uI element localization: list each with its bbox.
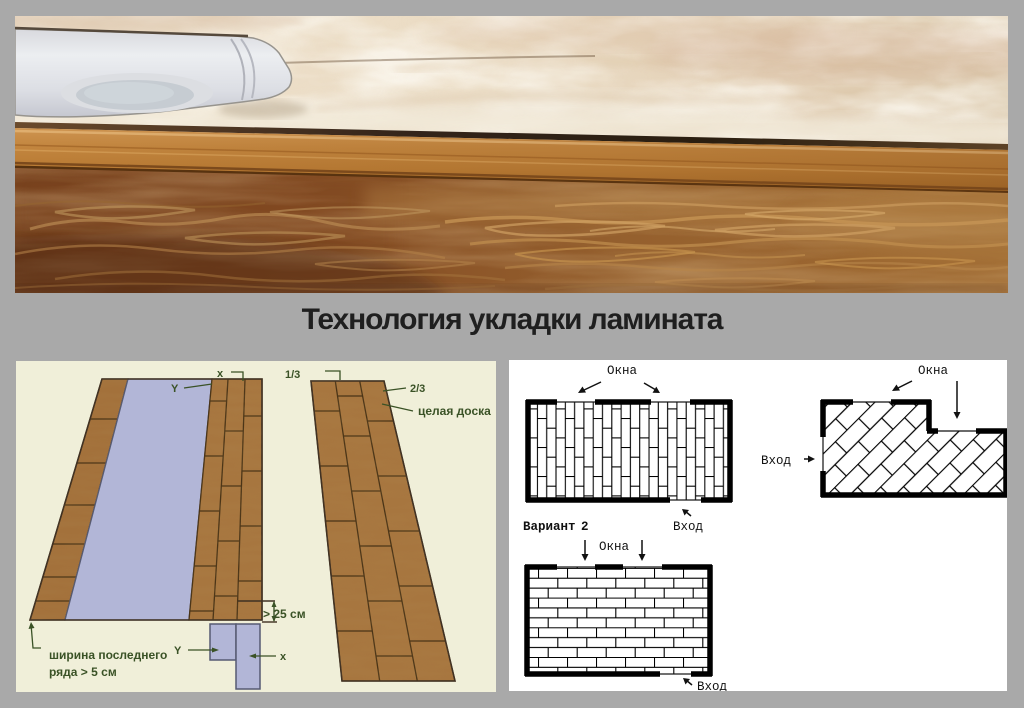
- svg-text:ряда > 5 см: ряда > 5 см: [49, 665, 117, 679]
- svg-text:Y: Y: [171, 383, 179, 395]
- svg-text:2/3: 2/3: [410, 383, 425, 395]
- svg-text:Вариант: Вариант: [523, 520, 576, 534]
- svg-text:Вход: Вход: [697, 680, 727, 691]
- svg-text:x: x: [217, 368, 224, 380]
- svg-text:x: x: [280, 651, 287, 663]
- svg-text:целая доска: целая доска: [418, 404, 491, 418]
- svg-text:ширина последнего: ширина последнего: [49, 648, 167, 662]
- svg-text:Окна: Окна: [599, 540, 630, 554]
- svg-text:> 25 см: > 25 см: [263, 607, 306, 621]
- svg-text:Вход: Вход: [761, 454, 791, 468]
- svg-text:1/3: 1/3: [285, 369, 300, 381]
- svg-text:Окна: Окна: [607, 364, 638, 378]
- svg-text:Окна: Окна: [918, 364, 949, 378]
- svg-text:Y: Y: [174, 645, 182, 657]
- svg-text:2: 2: [581, 520, 589, 534]
- svg-text:Вход: Вход: [673, 520, 703, 534]
